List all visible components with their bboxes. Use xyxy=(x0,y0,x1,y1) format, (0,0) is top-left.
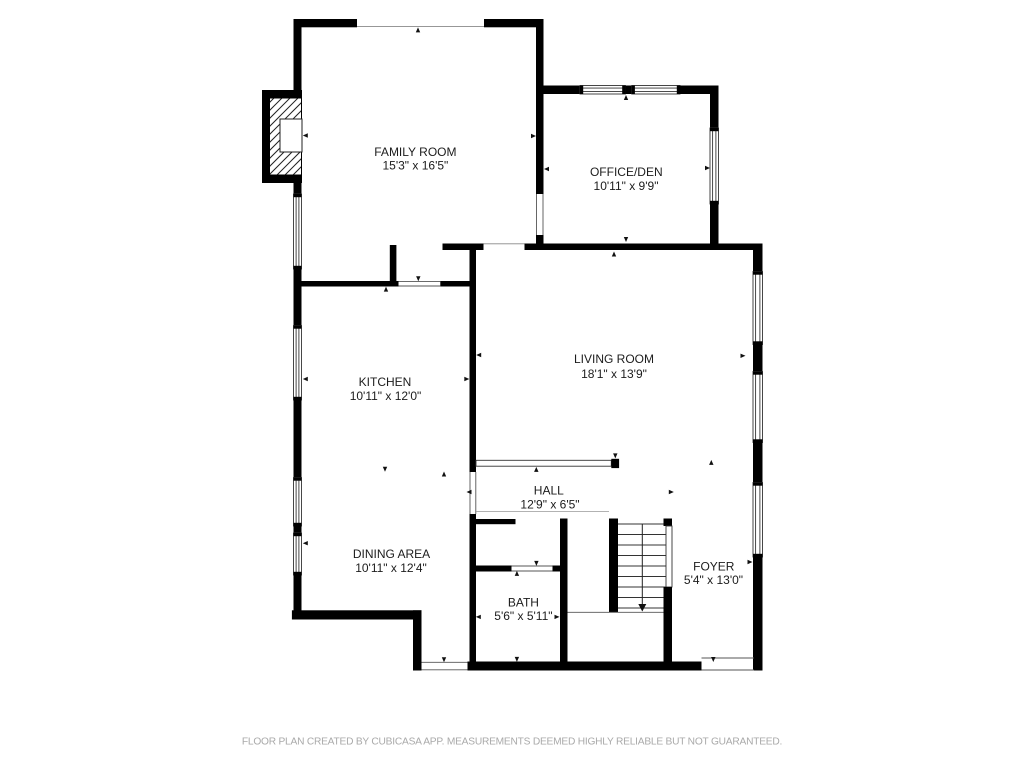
svg-text:FAMILY ROOM: FAMILY ROOM xyxy=(374,145,456,159)
svg-text:BATH: BATH xyxy=(508,595,539,609)
svg-text:OFFICE/DEN: OFFICE/DEN xyxy=(590,165,663,179)
svg-text:KITCHEN: KITCHEN xyxy=(359,375,412,389)
svg-text:10'11" x 12'4": 10'11" x 12'4" xyxy=(355,561,427,575)
svg-text:DINING AREA: DINING AREA xyxy=(353,547,430,561)
svg-text:10'11" x 9'9": 10'11" x 9'9" xyxy=(594,179,659,193)
svg-text:18'1" x 13'9": 18'1" x 13'9" xyxy=(581,367,647,381)
svg-text:LIVING ROOM: LIVING ROOM xyxy=(574,352,654,366)
svg-text:FOYER: FOYER xyxy=(693,559,735,573)
svg-text:10'11" x 12'0": 10'11" x 12'0" xyxy=(350,389,422,403)
svg-text:FLOOR PLAN CREATED BY CUBICASA: FLOOR PLAN CREATED BY CUBICASA APP. MEAS… xyxy=(242,737,782,748)
svg-text:15'3" x 16'5": 15'3" x 16'5" xyxy=(382,159,448,173)
svg-text:12'9" x 6'5": 12'9" x 6'5" xyxy=(520,498,579,512)
svg-text:5'4" x 13'0": 5'4" x 13'0" xyxy=(684,573,743,587)
svg-text:HALL: HALL xyxy=(534,484,564,498)
svg-text:5'6" x 5'11": 5'6" x 5'11" xyxy=(494,609,552,623)
